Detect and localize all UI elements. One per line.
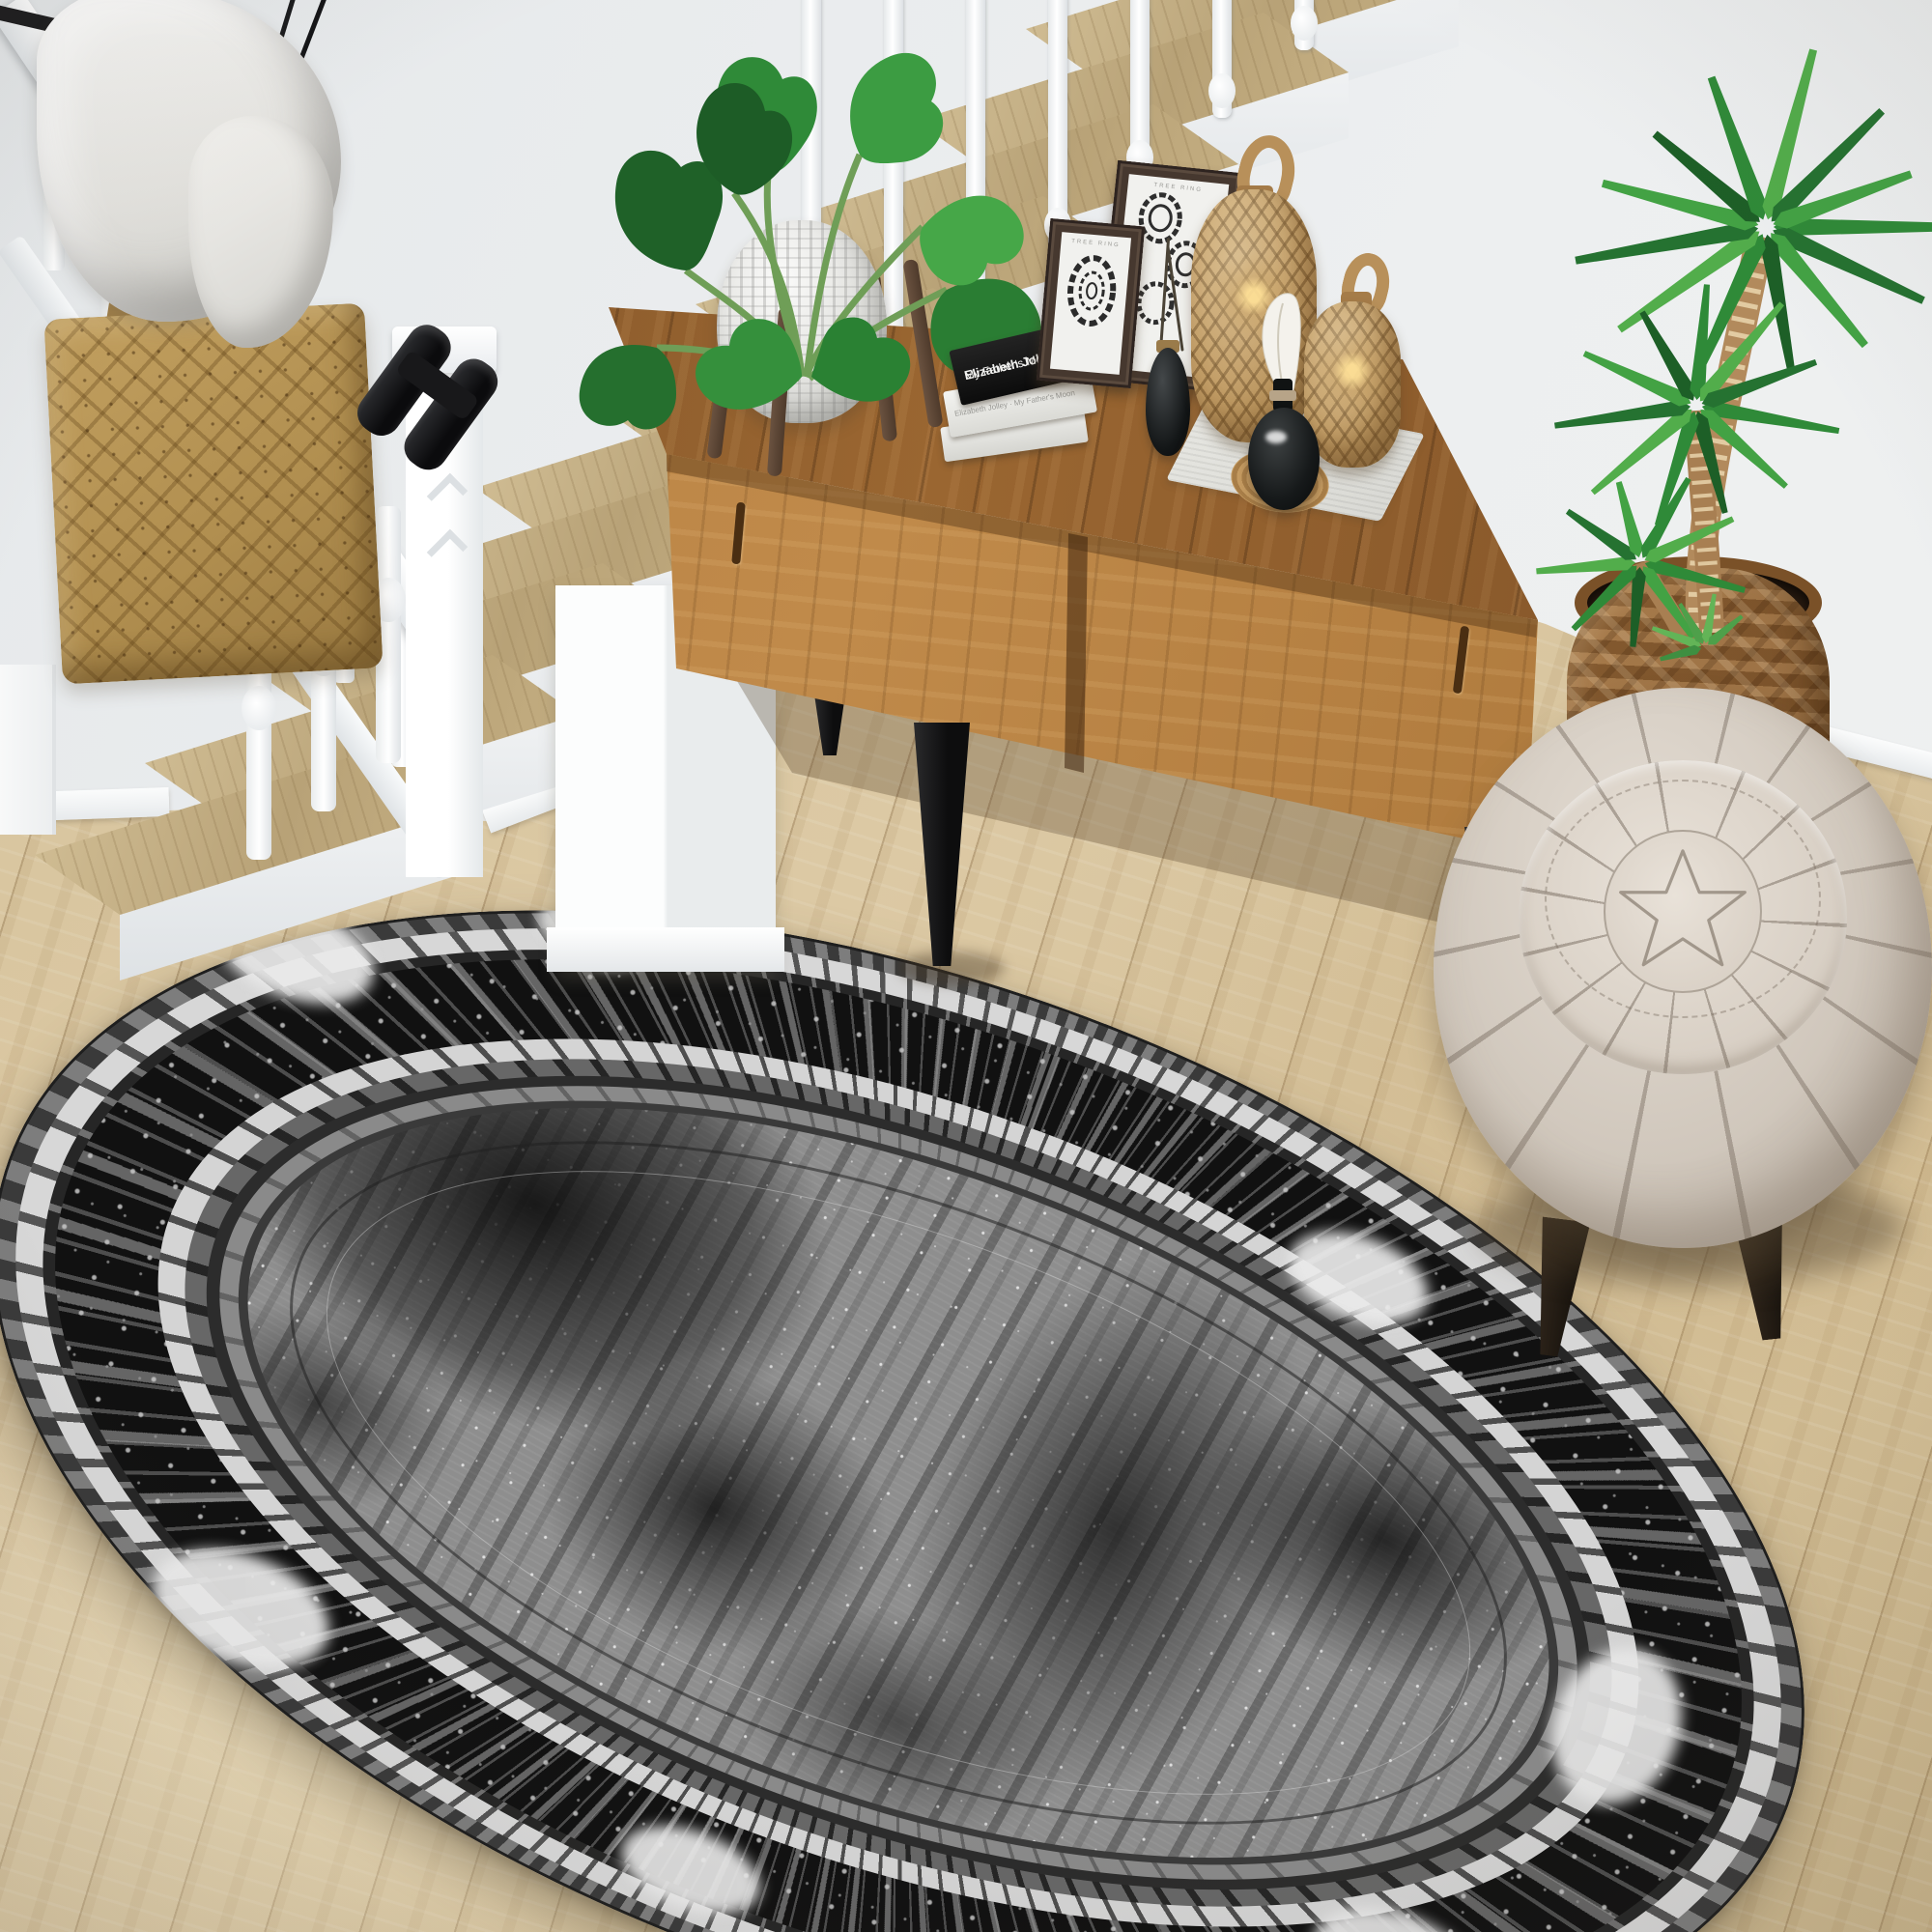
- yucca-plant: [1507, 29, 1932, 705]
- stair-baluster: [1130, 0, 1150, 185]
- feather-vase[interactable]: [1248, 408, 1320, 510]
- pouf-center-panel: [1604, 830, 1761, 993]
- moroccan-pouf[interactable]: [1434, 688, 1932, 1248]
- picture-frame-small[interactable]: TREE RING: [1037, 218, 1145, 388]
- feather-vase-band: [1269, 390, 1296, 401]
- pouf-star-stitch: [1610, 838, 1755, 983]
- vase-highlight: [1265, 431, 1287, 443]
- stair-baluster: [1294, 0, 1314, 50]
- frame-mat: TREE RING: [1050, 232, 1131, 375]
- tree-ring-print: [1063, 244, 1121, 341]
- tote-bag[interactable]: [43, 303, 383, 685]
- hallway-scene: Elizabeth Jolley · My Father's Moon Eliz…: [0, 0, 1932, 1932]
- stair-box-newel-base: [547, 927, 784, 972]
- stair-baluster: [1212, 0, 1232, 118]
- pouf-top-panel: [1519, 760, 1848, 1074]
